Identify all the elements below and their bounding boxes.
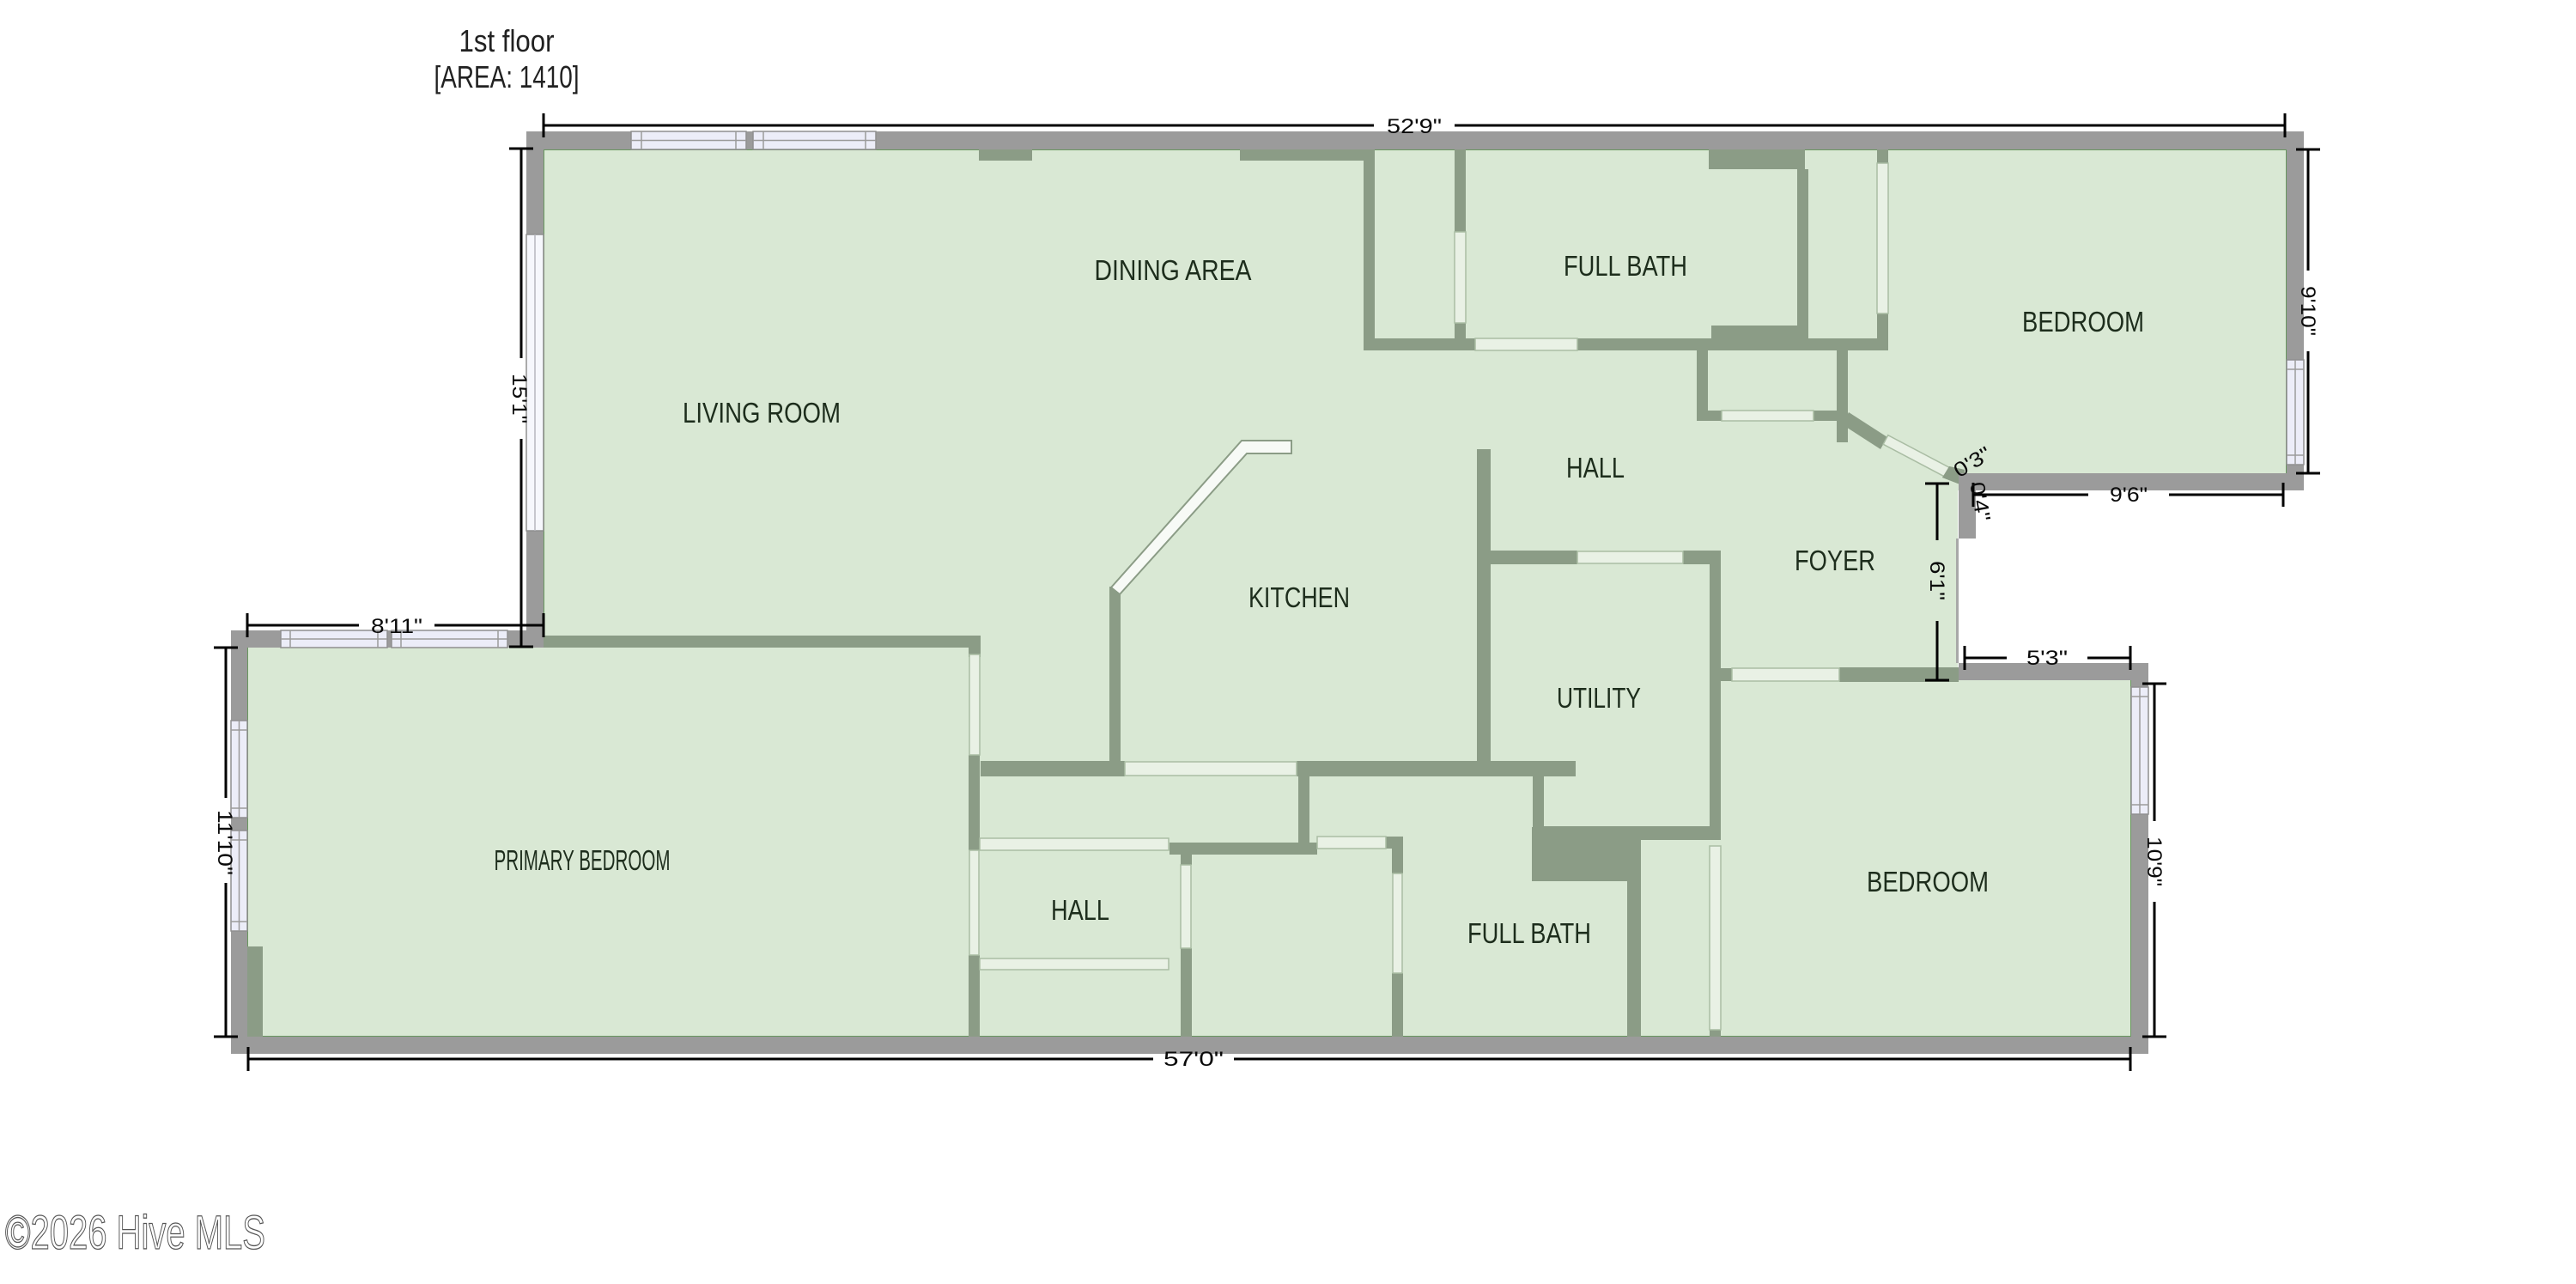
svg-text:©2026 Hive MLS: ©2026 Hive MLS xyxy=(5,1205,265,1259)
svg-text:6'1": 6'1" xyxy=(1925,561,1948,600)
svg-text:BEDROOM: BEDROOM xyxy=(1867,866,1989,898)
svg-text:HALL: HALL xyxy=(1051,894,1109,926)
svg-text:9'10": 9'10" xyxy=(2296,286,2319,336)
svg-text:BEDROOM: BEDROOM xyxy=(2022,306,2144,338)
svg-text:1st floor: 1st floor xyxy=(459,23,555,58)
svg-text:PRIMARY BEDROOM: PRIMARY BEDROOM xyxy=(495,844,671,876)
svg-text:8'11": 8'11" xyxy=(371,615,422,638)
svg-text:5'3": 5'3" xyxy=(2026,647,2068,670)
svg-text:FULL BATH: FULL BATH xyxy=(1467,917,1591,949)
svg-text:[AREA: 1410]: [AREA: 1410] xyxy=(434,59,580,94)
svg-text:UTILITY: UTILITY xyxy=(1557,682,1641,714)
svg-text:FULL BATH: FULL BATH xyxy=(1564,250,1687,282)
svg-text:9'6": 9'6" xyxy=(2110,484,2148,507)
svg-text:52'9": 52'9" xyxy=(1387,115,1442,138)
svg-text:HALL: HALL xyxy=(1566,452,1625,484)
svg-text:11'10": 11'10" xyxy=(213,810,236,875)
svg-text:57'0": 57'0" xyxy=(1163,1048,1224,1071)
svg-text:FOYER: FOYER xyxy=(1795,545,1875,576)
svg-text:10'9": 10'9" xyxy=(2142,837,2166,886)
svg-text:15'1": 15'1" xyxy=(507,374,531,423)
svg-text:DINING AREA: DINING AREA xyxy=(1095,254,1252,286)
svg-text:LIVING ROOM: LIVING ROOM xyxy=(683,397,841,429)
svg-text:KITCHEN: KITCHEN xyxy=(1249,581,1350,613)
